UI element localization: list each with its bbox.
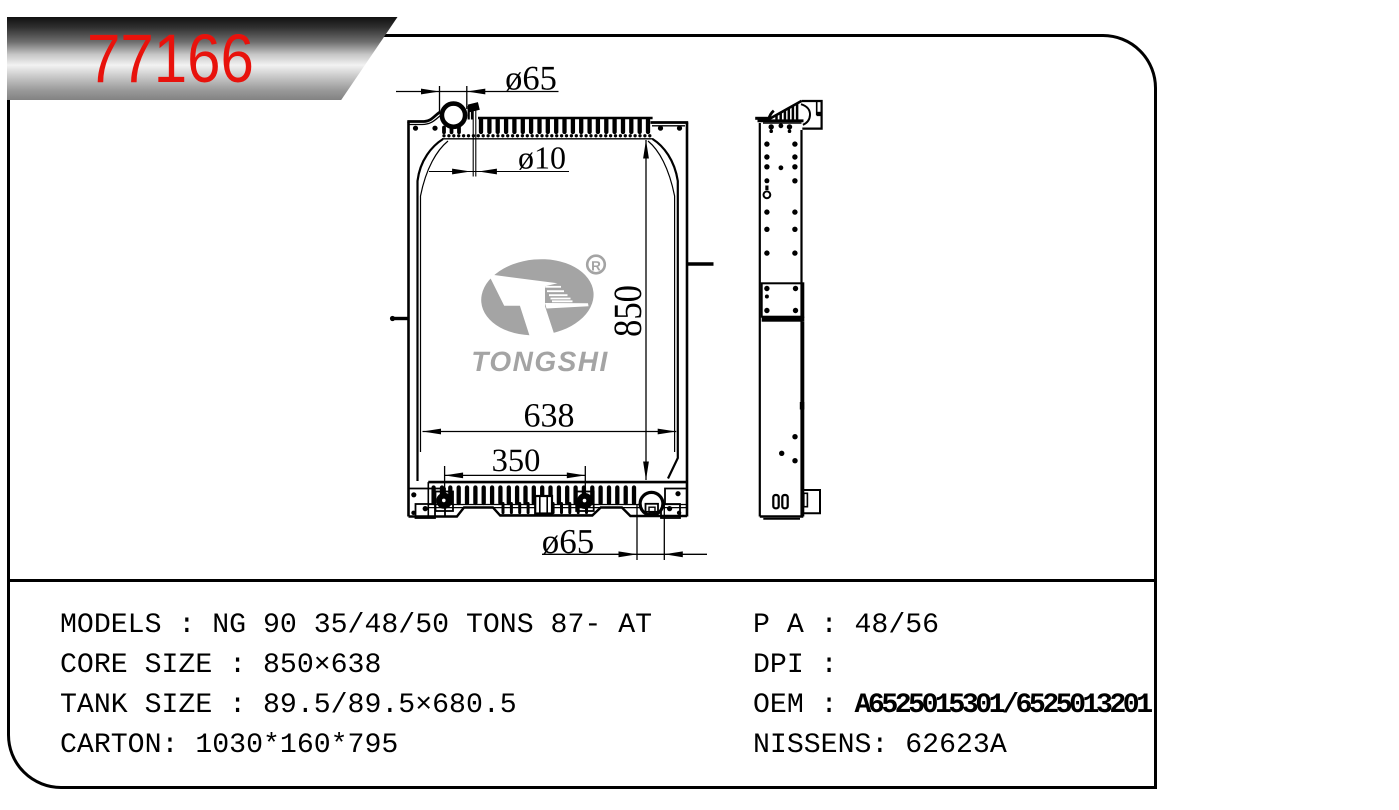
svg-text:R: R (591, 259, 601, 274)
svg-text:350: 350 (492, 443, 541, 479)
svg-text:638: 638 (524, 397, 575, 434)
svg-text:TONGSHI: TONGSHI (471, 346, 609, 377)
svg-text:ø65: ø65 (542, 522, 595, 561)
svg-text:ø65: ø65 (505, 60, 557, 98)
svg-text:ø10: ø10 (518, 139, 566, 175)
svg-text:850: 850 (605, 285, 650, 337)
